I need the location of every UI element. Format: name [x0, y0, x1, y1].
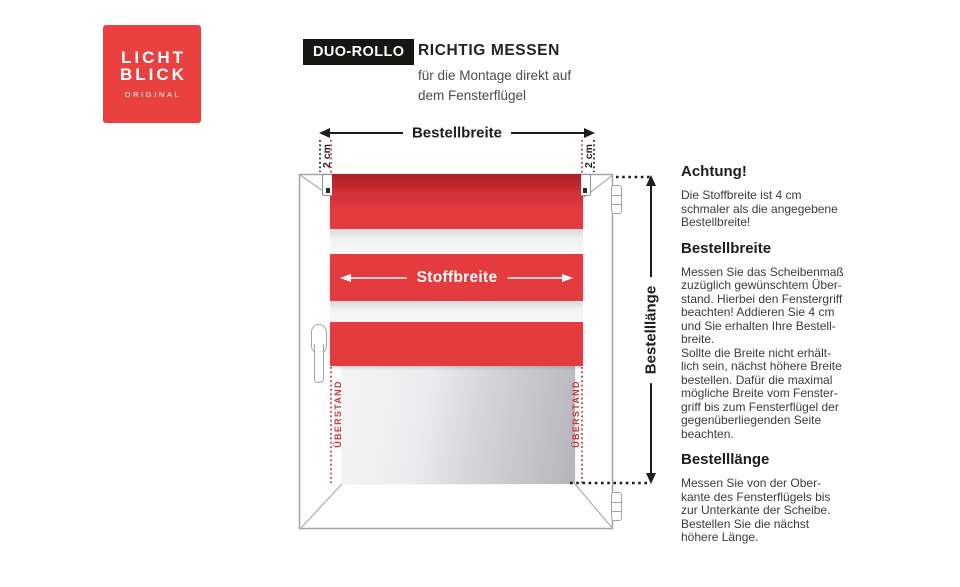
arrowhead-left-icon — [319, 128, 330, 138]
info-heading-bestellbreite: Bestellbreite — [681, 240, 859, 258]
arrowhead-up-icon — [646, 175, 656, 186]
info-body-bestelllaenge: Messen Sie von der Ober- kante des Fenst… — [681, 477, 859, 545]
info-heading-bestelllaenge: Bestelllänge — [681, 451, 859, 469]
roller-bracket-right — [583, 188, 587, 193]
bestellbreite-label: Bestellbreite — [403, 125, 511, 142]
window-hinge-top — [611, 185, 622, 214]
info-body-bestellbreite: Messen Sie das Scheibenmaß zuzüglich gew… — [681, 266, 859, 442]
fabric-sheer-stripe-1 — [330, 229, 583, 254]
window-hinge-bottom — [611, 492, 622, 521]
page: LICHT BLICK ORIGINAL DUO-ROLLO RICHTIG M… — [0, 0, 960, 587]
page-subtitle: für die Montage direkt auf dem Fensterfl… — [418, 66, 571, 105]
bestelllaenge-label: Bestelllänge — [643, 277, 660, 383]
roller-bracket-left — [326, 188, 330, 193]
fabric-stripe-3 — [330, 322, 583, 366]
ueberstand-label-left: ÜBERSTAND — [333, 380, 343, 448]
info-body-achtung: Die Stoffbreite ist 4 cm schmaler als di… — [681, 189, 859, 230]
page-title: RICHTIG MESSEN — [418, 42, 560, 60]
fabric-sheer-stripe-2 — [330, 301, 583, 322]
stoffbreite-label: Stoffbreite — [407, 269, 508, 287]
brand-wordmark: LICHT BLICK — [120, 49, 187, 83]
order-width-dotted-guides — [320, 140, 594, 172]
fabric-stripe-1 — [330, 196, 583, 229]
arrowhead-right-icon — [584, 128, 595, 138]
product-badge: DUO-ROLLO — [303, 39, 414, 65]
brand-logo: LICHT BLICK ORIGINAL — [103, 25, 201, 123]
brand-tagline: ORIGINAL — [125, 90, 182, 99]
offset-2cm-label-right: 2 cm — [583, 144, 595, 168]
roller-tube — [332, 174, 581, 196]
info-column: Achtung! Die Stoffbreite ist 4 cm schmal… — [681, 163, 859, 555]
window-handle-shaft — [314, 344, 324, 383]
offset-2cm-label-left: 2 cm — [321, 144, 333, 168]
ueberstand-label-right: ÜBERSTAND — [571, 380, 581, 448]
window-glass — [342, 366, 575, 484]
arrowhead-down-icon — [646, 473, 656, 484]
info-heading-achtung: Achtung! — [681, 163, 859, 181]
